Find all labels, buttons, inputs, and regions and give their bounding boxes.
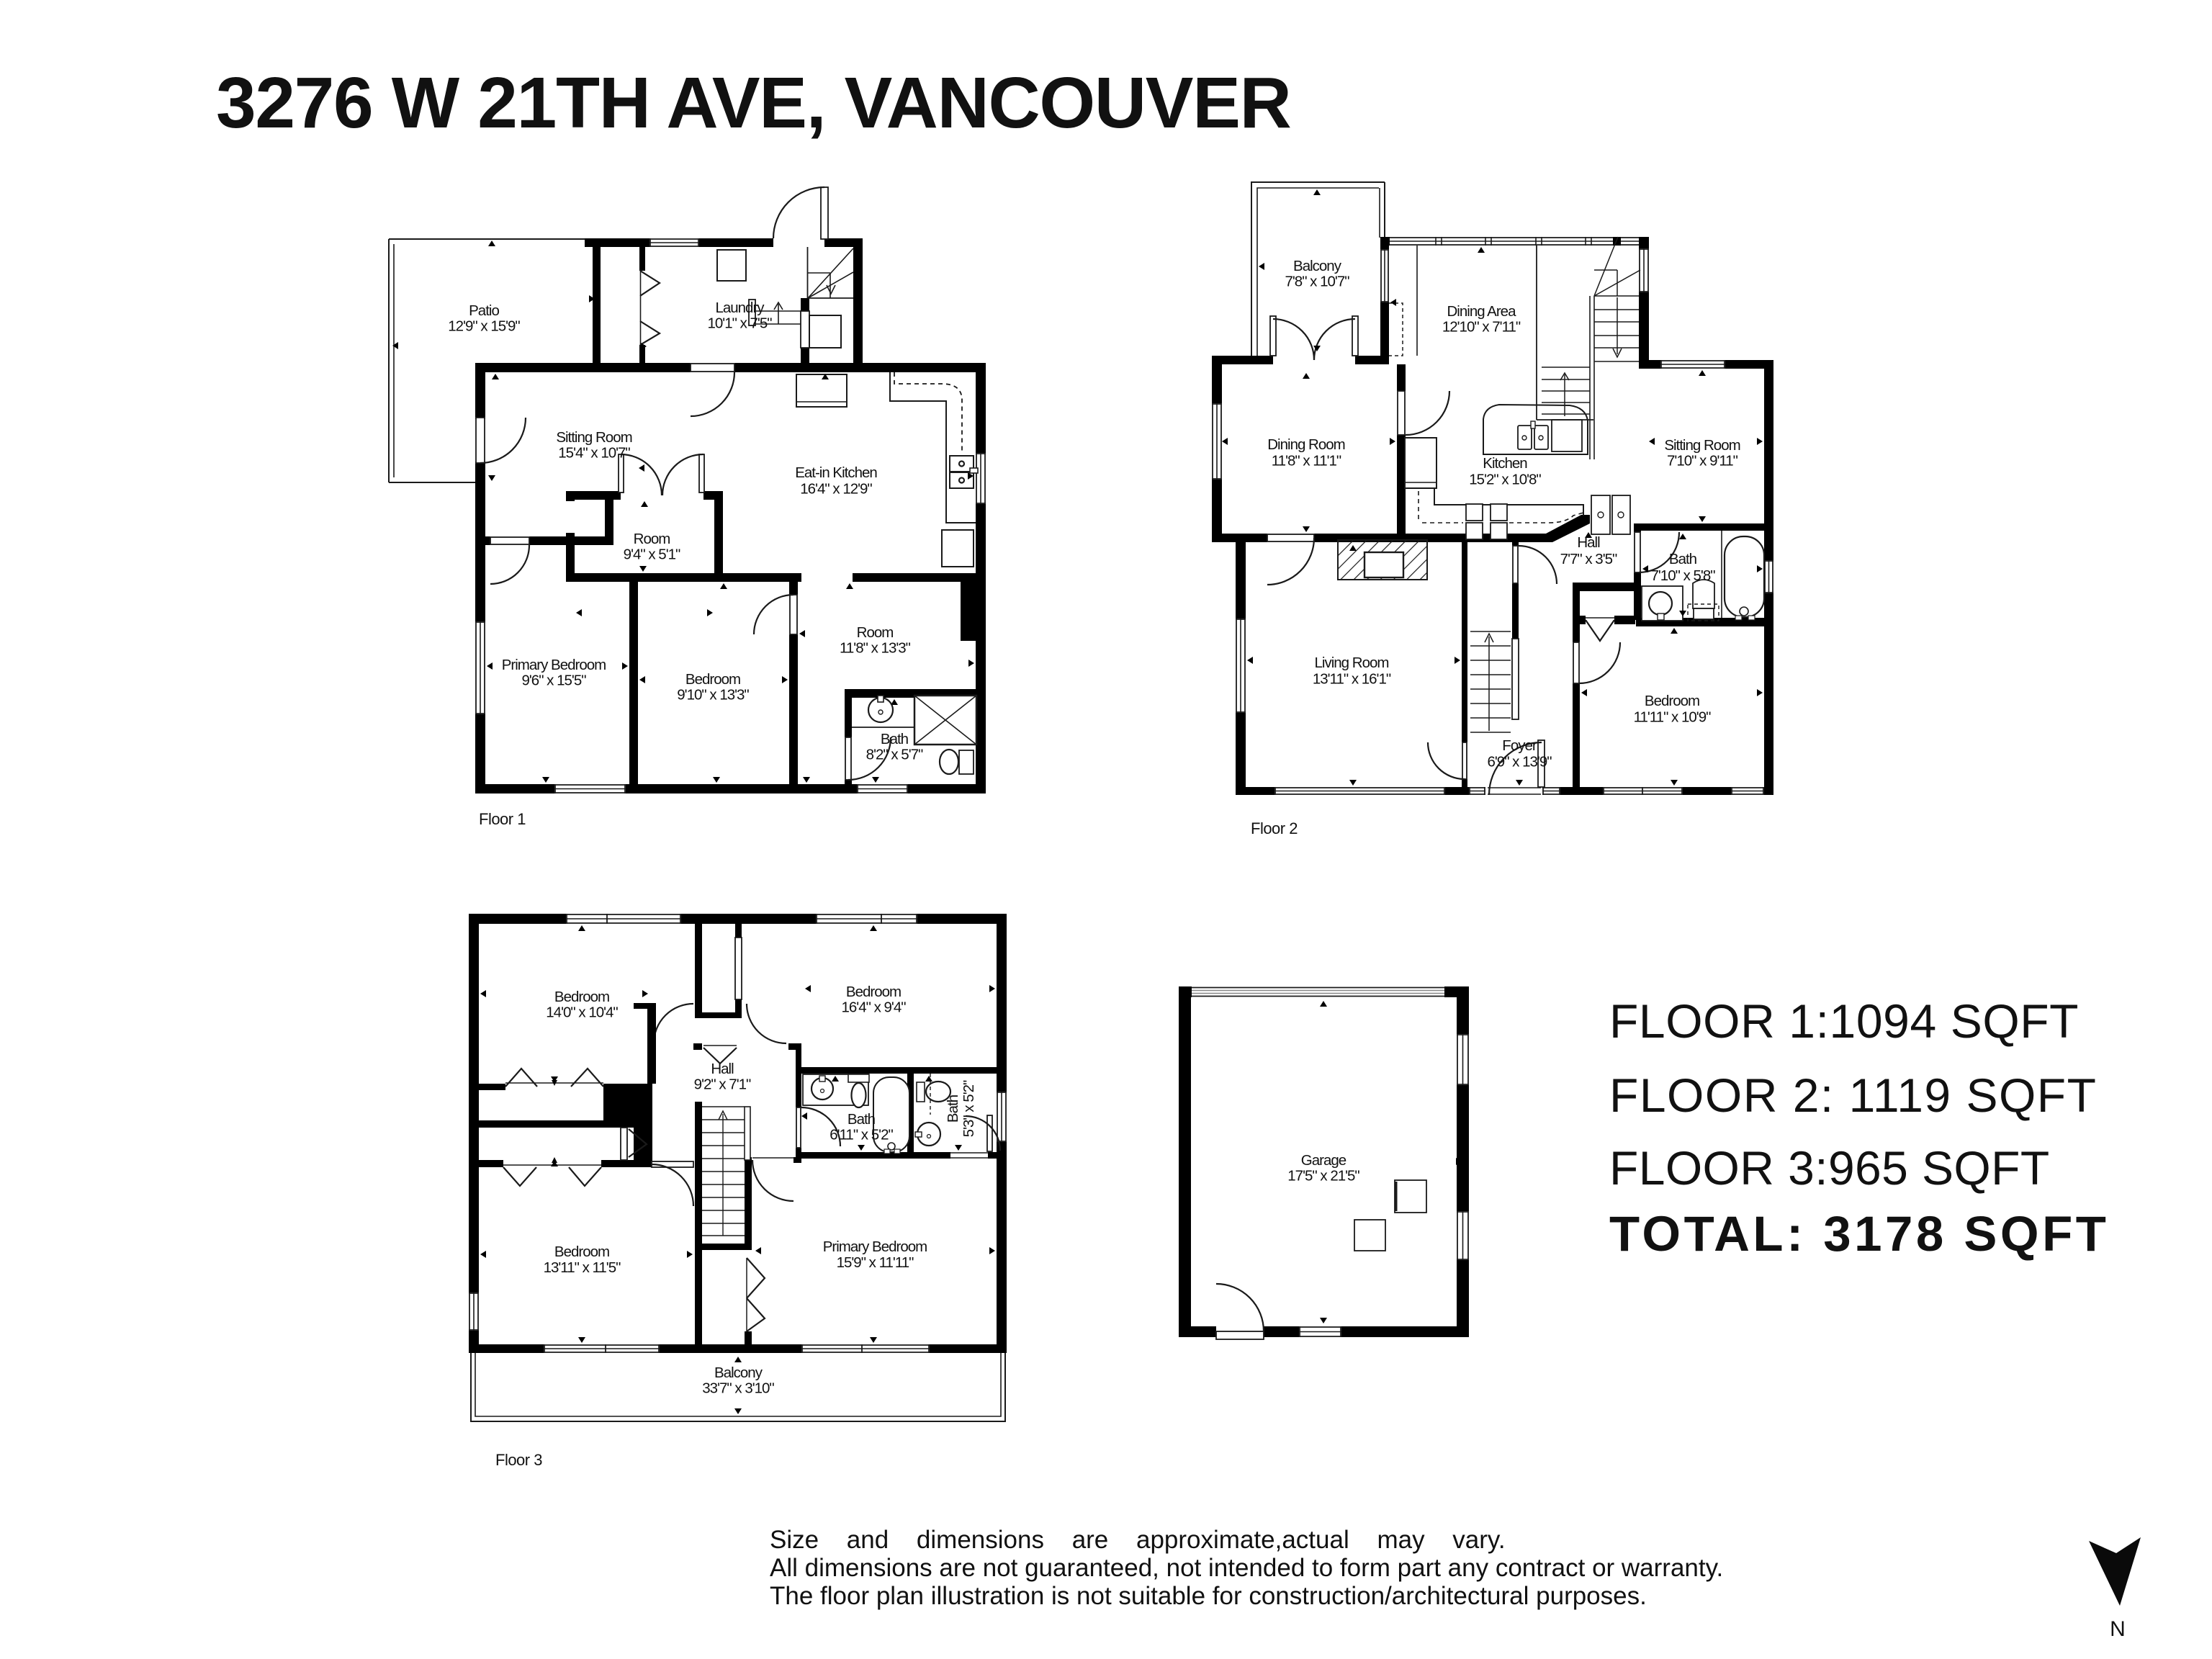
svg-text:Bedroom: Bedroom <box>846 984 901 1000</box>
svg-text:9'2" x 7'1": 9'2" x 7'1" <box>694 1076 751 1093</box>
svg-text:FLOOR 1:1094 SQFT: FLOOR 1:1094 SQFT <box>1609 994 2079 1048</box>
svg-text:11'11" x 10'9": 11'11" x 10'9" <box>1634 709 1712 726</box>
svg-text:Sitting Room: Sitting Room <box>556 429 631 446</box>
svg-text:Dining Area: Dining Area <box>1447 303 1517 320</box>
svg-text:15'4" x 10'7": 15'4" x 10'7" <box>558 445 630 462</box>
svg-text:6'11" x 5'2": 6'11" x 5'2" <box>829 1127 893 1143</box>
svg-text:Bath: Bath <box>945 1094 961 1123</box>
svg-text:15'9" x 11'11": 15'9" x 11'11" <box>837 1254 914 1271</box>
svg-text:Primary Bedroom: Primary Bedroom <box>502 657 606 673</box>
svg-text:11'8" x 13'3": 11'8" x 13'3" <box>840 640 911 657</box>
svg-text:Bedroom: Bedroom <box>554 1244 609 1260</box>
svg-text:Bedroom: Bedroom <box>1645 693 1699 709</box>
svg-text:Balcony: Balcony <box>714 1364 763 1381</box>
svg-text:33'7" x 3'10": 33'7" x 3'10" <box>702 1380 774 1397</box>
svg-text:The floor plan illustration is: The floor plan illustration is not suita… <box>770 1582 1647 1610</box>
svg-text:Living Room: Living Room <box>1315 655 1389 671</box>
svg-text:Bedroom: Bedroom <box>554 989 609 1005</box>
svg-text:FLOOR 3:965 SQFT: FLOOR 3:965 SQFT <box>1609 1141 2050 1195</box>
svg-text:7'10" x 5'8": 7'10" x 5'8" <box>1650 567 1715 584</box>
svg-text:9'10" x 13'3": 9'10" x 13'3" <box>677 687 749 703</box>
svg-text:11'8" x 11'1": 11'8" x 11'1" <box>1272 453 1341 469</box>
svg-text:Garage: Garage <box>1301 1152 1346 1169</box>
svg-text:8'2" x 5'7": 8'2" x 5'7" <box>866 747 923 763</box>
svg-text:Bath: Bath <box>1669 551 1697 567</box>
svg-text:Patio: Patio <box>469 302 499 319</box>
svg-text:Floor 1: Floor 1 <box>479 810 526 828</box>
svg-text:10'1" x 7'5": 10'1" x 7'5" <box>707 315 772 332</box>
svg-text:7'8" x 10'7": 7'8" x 10'7" <box>1285 274 1349 290</box>
svg-text:Size and dimensions are approx: Size and dimensions are approximate,actu… <box>770 1526 1506 1554</box>
svg-text:7'7" x 3'5": 7'7" x 3'5" <box>1560 551 1617 567</box>
svg-text:Foyer: Foyer <box>1502 737 1537 754</box>
svg-text:Balcony: Balcony <box>1293 258 1342 274</box>
svg-text:Sitting Room: Sitting Room <box>1664 437 1740 454</box>
svg-text:17'5" x 21'5": 17'5" x 21'5" <box>1287 1168 1359 1184</box>
svg-text:13'11" x 11'5": 13'11" x 11'5" <box>544 1259 621 1276</box>
svg-text:13'11" x 16'1": 13'11" x 16'1" <box>1313 671 1391 688</box>
svg-text:5'3" x 5'2": 5'3" x 5'2" <box>961 1080 977 1137</box>
svg-text:3276 W 21TH AVE, VANCOUVER: 3276 W 21TH AVE, VANCOUVER <box>216 63 1291 143</box>
svg-text:9'6" x 15'5": 9'6" x 15'5" <box>521 673 586 689</box>
svg-text:Eat-in Kitchen: Eat-in Kitchen <box>795 464 877 481</box>
svg-text:Room: Room <box>857 624 894 641</box>
svg-text:14'0" x 10'4": 14'0" x 10'4" <box>546 1004 618 1021</box>
svg-text:7'10" x 9'11": 7'10" x 9'11" <box>1667 453 1738 469</box>
svg-text:Floor 3: Floor 3 <box>495 1451 542 1469</box>
svg-text:12'9" x 15'9": 12'9" x 15'9" <box>448 318 520 335</box>
svg-text:Dining Room: Dining Room <box>1267 436 1345 453</box>
svg-text:16'4" x 12'9": 16'4" x 12'9" <box>800 481 872 498</box>
svg-text:Kitchen: Kitchen <box>1483 455 1527 472</box>
svg-text:6'9" x 13'9": 6'9" x 13'9" <box>1487 754 1552 770</box>
svg-text:15'2" x 10'8": 15'2" x 10'8" <box>1469 472 1541 488</box>
svg-text:Hall: Hall <box>711 1061 734 1077</box>
svg-text:Room: Room <box>634 531 670 547</box>
svg-text:FLOOR 2: 1119 SQFT: FLOOR 2: 1119 SQFT <box>1609 1069 2097 1122</box>
svg-text:TOTAL: 3178 SQFT: TOTAL: 3178 SQFT <box>1609 1206 2109 1262</box>
svg-text:Laundry: Laundry <box>715 300 765 316</box>
svg-text:9'4" x 5'1": 9'4" x 5'1" <box>624 547 680 563</box>
svg-text:12'10" x 7'11": 12'10" x 7'11" <box>1442 319 1521 336</box>
svg-text:Bath: Bath <box>848 1111 876 1128</box>
svg-text:Primary Bedroom: Primary Bedroom <box>823 1238 927 1255</box>
svg-text:N: N <box>2110 1617 2126 1641</box>
svg-text:Bedroom: Bedroom <box>685 671 740 688</box>
svg-text:Floor 2: Floor 2 <box>1251 819 1298 837</box>
svg-text:Bath: Bath <box>881 731 909 747</box>
svg-text:16'4" x 9'4": 16'4" x 9'4" <box>841 999 906 1016</box>
svg-text:Hall: Hall <box>1577 534 1600 551</box>
svg-text:All dimensions are not guarant: All dimensions are not guaranteed, not i… <box>770 1554 1723 1582</box>
